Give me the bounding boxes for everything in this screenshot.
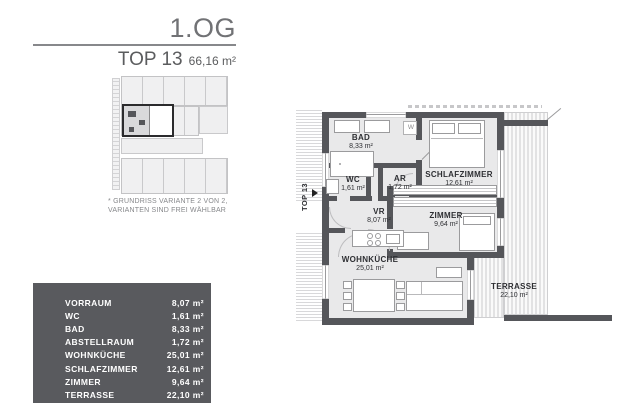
side-table-icon [436,267,462,278]
sofa-icon [406,281,463,311]
site-building-block [199,106,228,134]
chair-icon [343,292,352,300]
room-label-wc: WC 1,61 m² [341,175,365,192]
room-label-ar: AR 1,72 m² [388,174,412,191]
table-row: ZIMMER9,64 m² [33,375,211,388]
unit-tag-vertical: TOP 13 [299,183,311,221]
dining-table-icon [353,279,395,312]
site-edge-strip [112,78,120,190]
floor-title: 1.OG [33,13,236,43]
area-table: VORRAUM8,07 m² WC1,61 m² BAD8,33 m² ABST… [33,283,211,403]
washer-label: W [404,122,418,134]
variant-note-line1: * GRUNDRISS VARIANTE 2 VON 2, [108,198,228,207]
chair-icon [343,303,352,311]
room-label-wohnkueche: WOHNKÜCHE 25,01 m² [342,255,398,272]
page: 1.OG TOP 1366,16 m² * GRUNDRISS VARIANTE… [0,0,620,410]
unit-title: TOP 1366,16 m² [33,49,236,71]
table-row: BAD8,33 m² [33,322,211,335]
toilet-icon [326,179,339,194]
room-label-zimmer: ZIMMER 9,64 m² [429,211,462,228]
shower-icon [330,151,374,177]
row-label: VORRAUM [65,298,112,308]
window-left-lower [322,265,329,299]
table-row: SCHLAFZIMMER12,61 m² [33,362,211,375]
highlighted-unit-outline [122,104,174,137]
terrace-door-wohnkueche [467,270,474,300]
floor-plan: W [296,95,616,330]
washing-machine-icon: W [403,121,417,135]
variant-note: * GRUNDRISS VARIANTE 2 VON 2, VARIANTEN … [108,198,228,215]
kitchen-sink-icon [386,234,400,244]
row-label: ZIMMER [65,377,101,387]
row-value: 1,72 m² [172,337,204,347]
door-gap-schlafzimmer [416,140,422,160]
single-bed-icon [459,213,495,251]
site-building-band [121,138,203,154]
header-divider [33,44,236,46]
variant-note-line2: VARIANTEN SIND FREI WÄHLBAR [108,207,228,216]
row-value: 9,64 m² [172,377,204,387]
unit-arrow-icon [312,189,318,197]
row-label: WC [65,311,80,321]
site-building-row-bottom [121,158,228,194]
table-row: VORRAUM8,07 m² [33,296,211,309]
row-value: 8,07 m² [172,298,204,308]
row-value: 25,01 m² [167,350,204,360]
row-label: TERRASSE [65,390,115,400]
room-label-schlafzimmer: SCHLAFZIMMER 12,61 m² [425,170,493,187]
terrace-wall-bottom [504,315,612,321]
unit-mark [139,120,145,125]
row-label: WOHNKÜCHE [65,350,126,360]
row-value: 12,61 m² [167,364,204,374]
kitchen-counter-icon [352,230,404,247]
row-value: 8,33 m² [172,324,204,334]
row-label: ABSTELLRAUM [65,337,134,347]
row-label: BAD [65,324,85,334]
row-label: SCHLAFZIMMER [65,364,138,374]
table-row: ABSTELLRAUM1,72 m² [33,336,211,349]
room-label-terrasse: TERRASSE 22,10 m² [491,282,537,299]
wall-bottom [322,318,474,325]
chair-icon [396,281,405,289]
window-zimmer [497,218,504,246]
sink-icon [334,120,360,133]
pillow-icon [458,123,481,134]
double-bed-icon [429,120,485,168]
unit-mark [128,111,136,117]
wardrobe-icon [393,197,497,207]
room-label-vr: VR 8,07 m² [367,207,391,224]
unit-name: TOP 13 [118,49,183,70]
window-bad [366,112,406,118]
wall-vr-stub [323,228,345,233]
pillow-icon [463,216,491,225]
unit-total-area: 66,16 m² [189,54,236,68]
table-row: TERRASSE22,10 m² [33,388,211,401]
site-building-row-top [121,76,228,106]
terrace-door-schlafzimmer [497,150,504,198]
table-row: WOHNKÜCHE25,01 m² [33,349,211,362]
room-label-bad: BAD 8,33 m² [349,133,373,150]
wall-zimmer-bottom [393,252,504,258]
chair-icon [343,281,352,289]
unit-mark [129,127,134,132]
site-plan-thumbnail [100,74,232,198]
chair-icon [396,292,405,300]
unit-tag-text: TOP 13 [300,183,309,211]
clipped-neighbor-text [408,105,542,108]
table-row: WC1,61 m² [33,309,211,322]
row-value: 22,10 m² [167,390,204,400]
chair-icon [396,303,405,311]
pillow-icon [432,123,455,134]
terrace-wall-top [504,120,548,126]
sink-icon [364,120,390,133]
row-value: 1,61 m² [172,311,204,321]
wall-top [322,112,504,118]
door-gap-wc [337,196,350,201]
